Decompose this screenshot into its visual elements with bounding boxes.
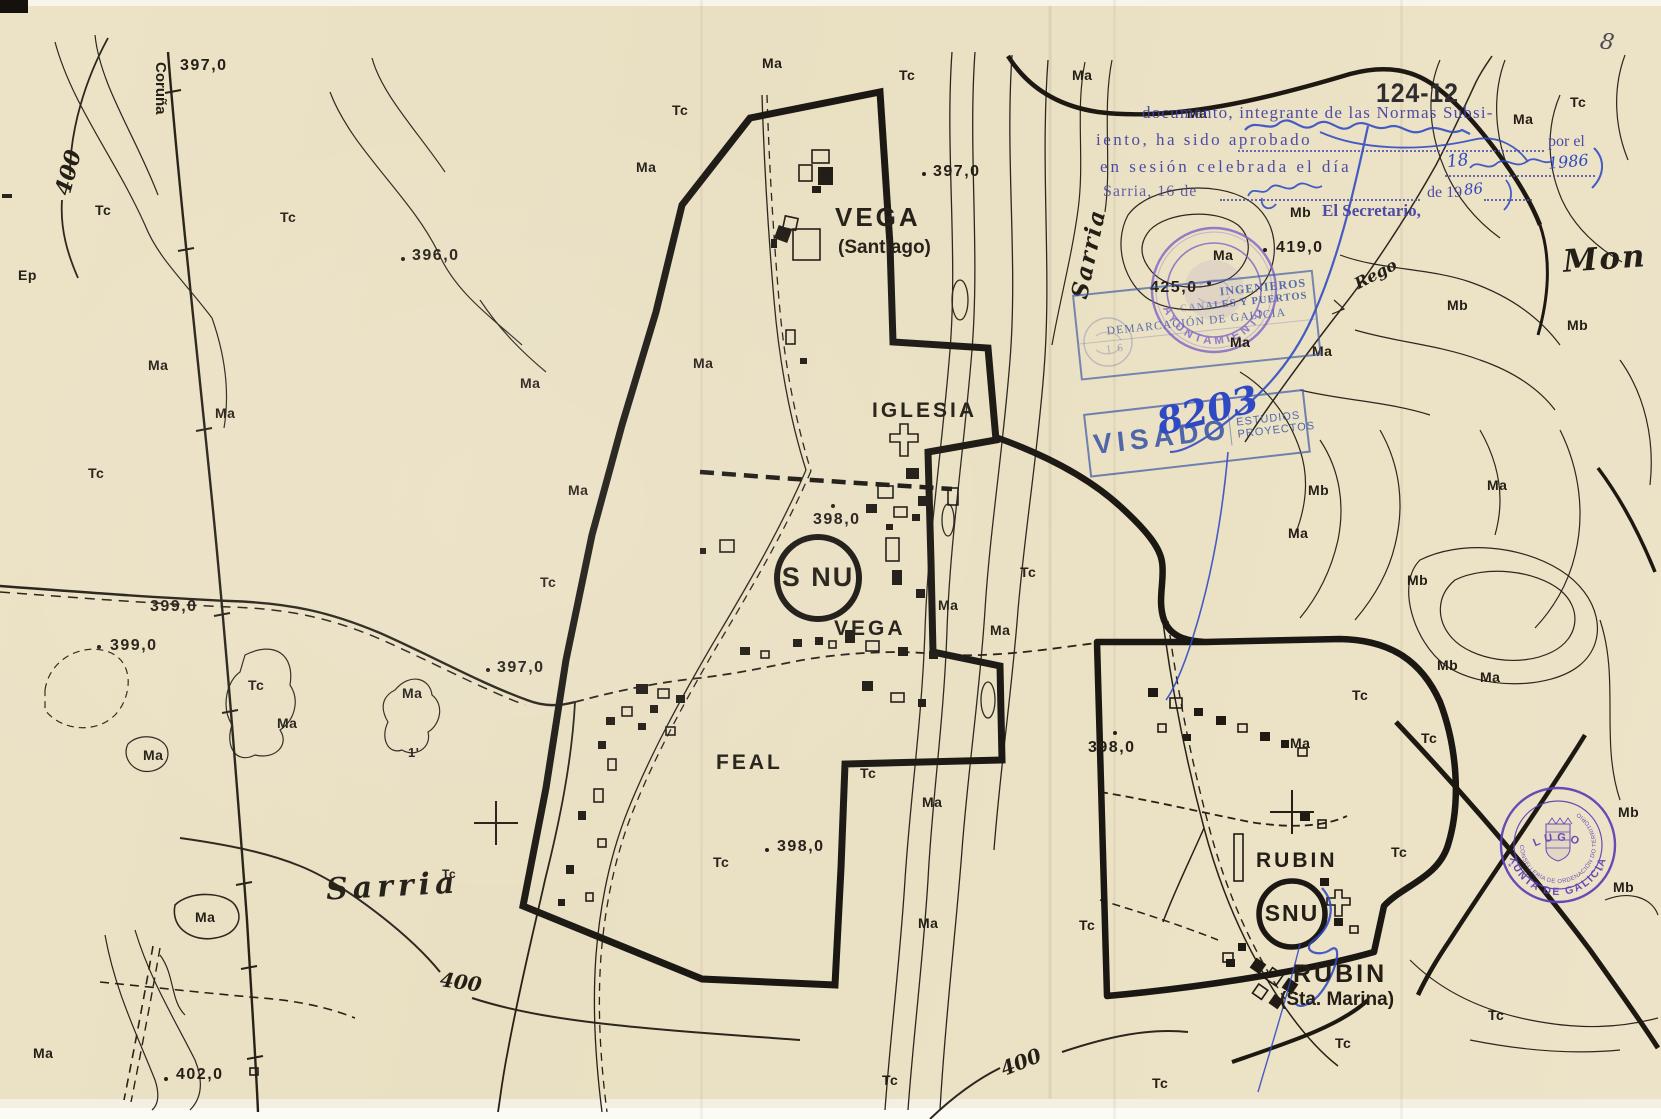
scan-streak [700,0,703,1119]
scan-streak [1113,0,1116,1119]
terrain-code-tc: Tc [1020,565,1036,579]
handwritten-day: 18 [1446,152,1469,171]
spot-height: 399,0 [150,599,198,615]
terrain-code-tc: Tc [95,203,111,217]
place-label-vega: VEGA [835,204,921,230]
terrain-code-ma: Ma [1072,68,1092,82]
approval-line-2-end: por el [1548,134,1585,150]
xunta-stamp-star-left: * [1508,862,1512,872]
spot-height: 397,0 [497,660,545,676]
terrain-code-mb: Mb [1290,205,1311,219]
terrain-code-tc: Tc [442,868,456,880]
terrain-code-tc: Tc [713,855,729,869]
place-label-mon: Mon [1562,241,1647,278]
terrain-code-ma: Ma [762,56,782,70]
terrain-code-tc: Tc [1079,918,1095,932]
snu-label-small: SNU [1265,900,1320,927]
terrain-code-ma: Ma [402,686,422,700]
terrain-code-ma: Ma [143,748,163,762]
terrain-code-tc: Tc [540,575,556,589]
terrain-code-ma: Ma [215,406,235,420]
terrain-code-ma: Ma [148,358,168,372]
spot-height: 419,0 [1276,240,1324,256]
terrain-code-mb: Mb [1447,298,1468,312]
terrain-code-ma: Ma [195,910,215,924]
terrain-code-ma: Ma [1480,670,1500,684]
xunta-stamp-star-right: * [1600,866,1604,876]
terrain-code-mb: Mb [1407,573,1428,587]
terrain-code-tc: Tc [88,466,104,480]
place-label-rubin-north: RUBIN [1256,850,1338,871]
spot-height: 398,0 [813,512,861,528]
terrain-code-mb: Mb [1308,483,1329,497]
roads [0,52,1347,1112]
place-label-vega-south: VEGA [834,618,906,639]
terrain-tick-mark: 1' [408,746,419,759]
road-label-coruna: Coruña [153,62,168,115]
place-label-rubin-south: RUBIN [1293,962,1387,987]
scan-streak [1400,0,1403,1119]
approval-line-4-end: de 19 [1427,185,1462,201]
terrain-code-tc: Tc [1352,688,1368,702]
streams-left [45,35,546,1110]
terrain-code-ma: Ma [990,623,1010,637]
terrain-code-ma: Ma [636,160,656,174]
terrain-code-ma: Ma [1288,526,1308,540]
terrain-code-tc: Tc [1488,1008,1504,1022]
terrain-code-ma: Ma [938,598,958,612]
terrain-code-ma: Ma [1290,736,1310,750]
map-linework: AYUNTAMIENTO XUNTA DE GALICIA CONSELLERÍ… [0,0,1661,1119]
place-label-feal: FEAL [716,752,783,773]
spot-height: 398,0 [1088,740,1136,756]
place-label-rubin-sub: (Sta. Marina) [1280,990,1394,1009]
terrain-code-tc: Tc [280,210,296,224]
handwritten-year-short: 86 [1463,181,1483,198]
terrain-code-tc: Tc [672,103,688,117]
terrain-code-ep: Ep [18,268,37,282]
church-iglesia [890,424,918,456]
xunta-shield-icon [1546,818,1572,861]
terrain-code-ma: Ma [520,376,540,390]
snu-label-large: S NU [782,562,855,593]
place-label-vega-sub: (Santiago) [838,238,931,257]
handwritten-year: 1986 [1547,152,1589,171]
terrain-code-tc: Tc [248,678,264,692]
terrain-code-ma: Ma [922,795,942,809]
terrain-code-mb: Mb [1618,805,1639,819]
spot-height: 402,0 [176,1067,224,1083]
terrain-code-ma: Ma [693,356,713,370]
place-label-iglesia: IGLESIA [872,400,977,421]
place-label-sarria-town: Sarria [325,869,460,906]
terrain-code-mb: Mb [1567,318,1588,332]
boundary-rubin-zone [998,438,1456,996]
scanned-planning-map: AYUNTAMIENTO XUNTA DE GALICIA CONSELLERÍ… [0,0,1661,1119]
approval-line-4: Sarria, 16 de [1103,184,1197,200]
terrain-code-tc: Tc [1152,1076,1168,1090]
terrain-code-tc: Tc [1421,731,1437,745]
terrain-code-ma: Ma [33,1046,53,1060]
terrain-code-ma: Ma [1213,248,1233,262]
approval-line-1: documento, integrante de las Normas Subs… [1142,104,1494,121]
terrain-code-tc: Tc [1570,95,1586,109]
spot-height: 397,0 [180,58,228,74]
terrain-code-ma: Ma [1513,112,1533,126]
spot-height: 399,0 [110,638,158,654]
spot-height: 398,0 [777,839,825,855]
grid-crosses [474,790,1314,845]
terrain-code-tc: Tc [882,1073,898,1087]
terrain-code-mb: Mb [1613,880,1634,894]
approval-line-3: en sesión celebrada el día [1100,158,1352,175]
spot-height: 396,0 [412,248,460,264]
terrain-code-ma: Ma [277,716,297,730]
terrain-code-mb: Mb [1437,658,1458,672]
terrain-code-ma: Ma [918,916,938,930]
approval-line-5: El Secretario, [1322,202,1421,219]
terrain-code-ma: Ma [1487,478,1507,492]
contour-label-400-bottomleft: 400 [439,969,483,995]
terrain-code-tc: Tc [899,68,915,82]
terrain-code-ma: Ma [568,483,588,497]
spot-height: 397,0 [933,164,981,180]
terrain-code-tc: Tc [860,766,876,780]
terrain-code-tc: Tc [1335,1036,1351,1050]
stamp-xunta-graphic: XUNTA DE GALICIA CONSELLERÍA DE ORDENACI… [1501,788,1615,902]
